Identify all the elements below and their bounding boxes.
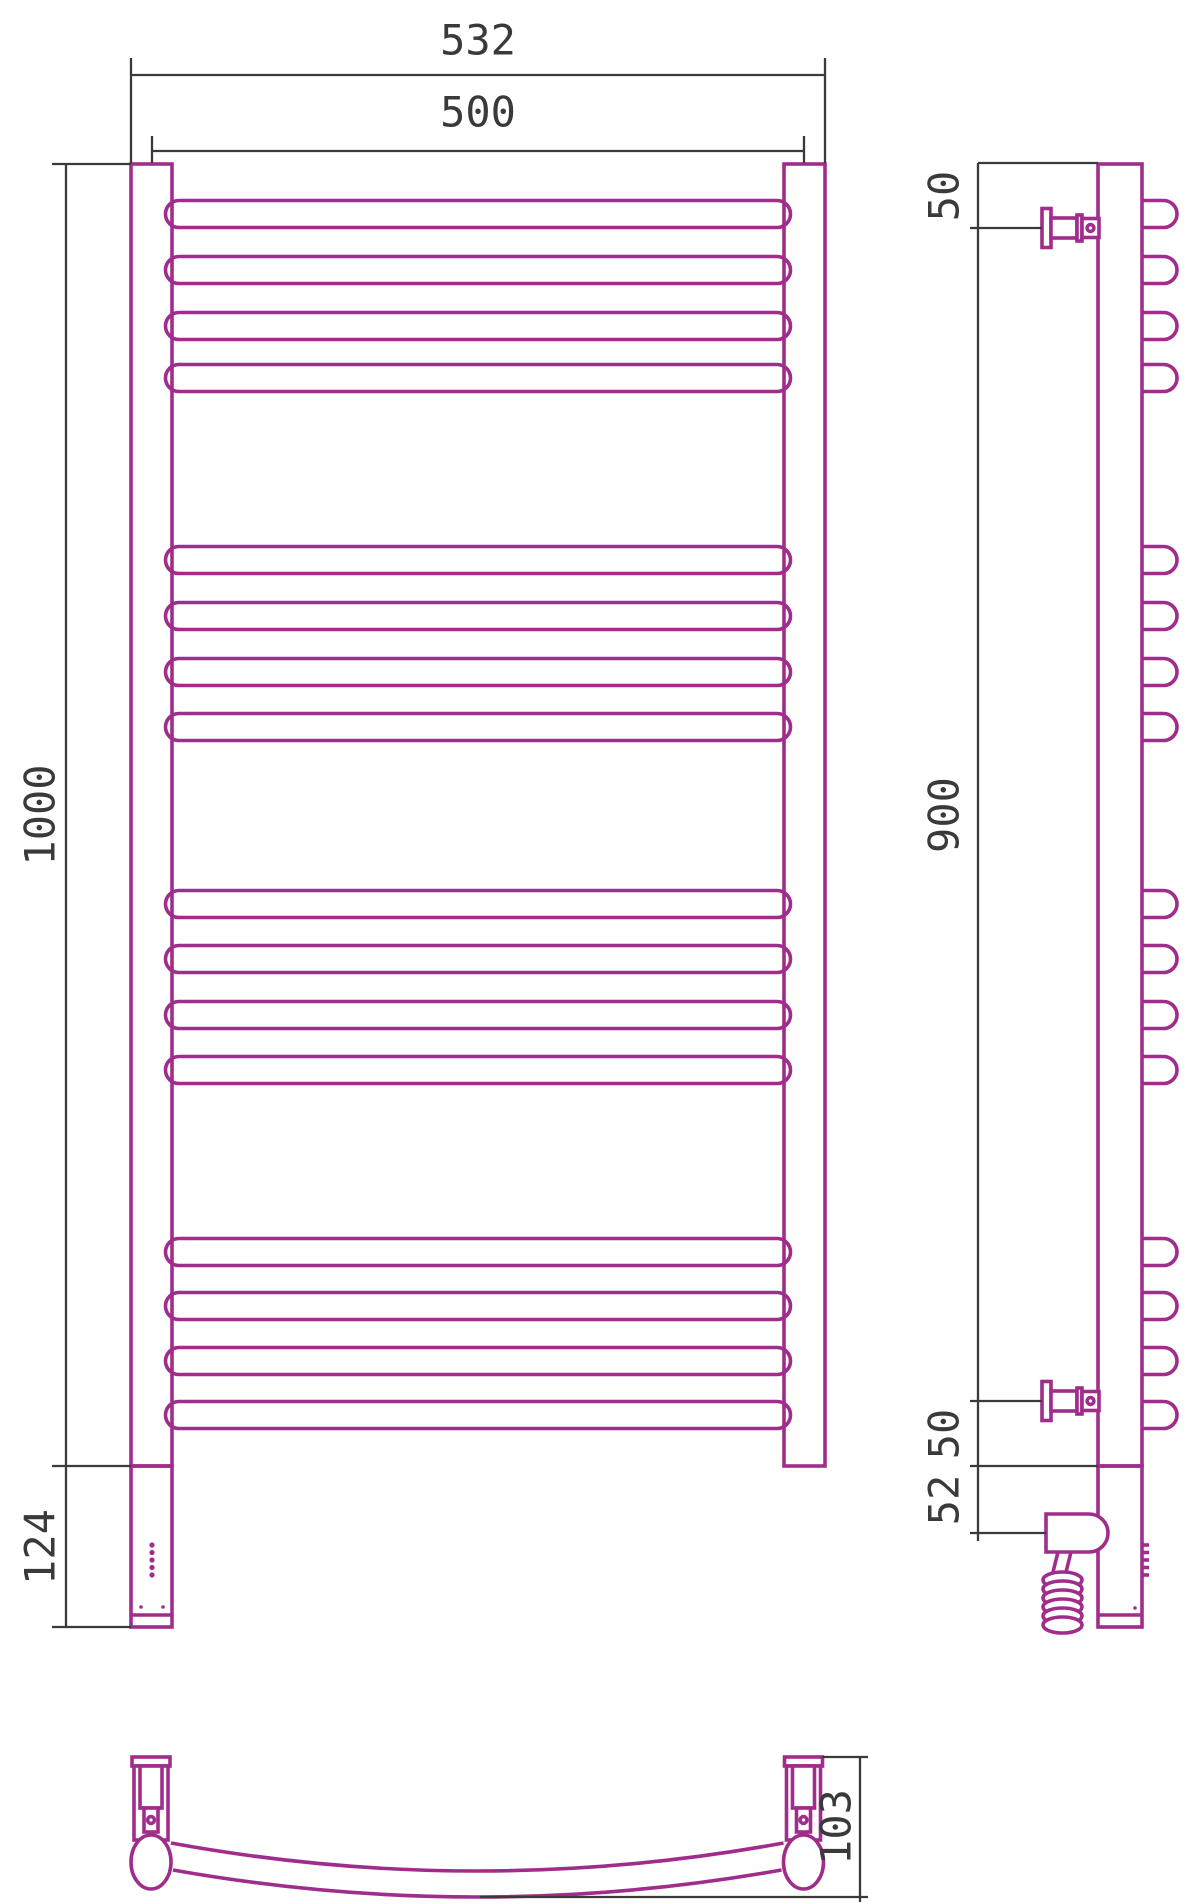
bracket-pin <box>1051 1391 1077 1411</box>
curved-bar-top-edge <box>171 1843 784 1871</box>
led-indicator-dot <box>149 1572 154 1577</box>
rung-stub <box>1142 257 1177 284</box>
led-indicator-dot <box>149 1557 154 1562</box>
technical-drawing-page: 5325001000124509005052103 <box>0 0 1200 1904</box>
rung-bar <box>166 603 791 630</box>
power-outlet-housing <box>1046 1514 1108 1552</box>
led-indicator-dot <box>149 1550 154 1555</box>
rung-bar <box>166 1057 791 1084</box>
rung-stub <box>1142 201 1177 228</box>
cable-coil-loop <box>1043 1617 1082 1633</box>
rung-stub <box>1142 1239 1177 1266</box>
rung-bar <box>166 1002 791 1029</box>
bracket-head <box>1082 1392 1099 1411</box>
dim-label-124: 124 <box>16 1509 65 1585</box>
dim-label-1000: 1000 <box>16 764 65 865</box>
rung-stub <box>1142 1402 1177 1429</box>
dim-label-500: 500 <box>440 88 516 137</box>
towel-rail-drawing: 5325001000124509005052103 <box>0 0 1200 1904</box>
rung-stub <box>1142 1057 1177 1084</box>
rung-bar <box>166 1293 791 1320</box>
dim-label-50-top: 50 <box>920 171 969 222</box>
side-post <box>1098 164 1142 1466</box>
rung-bar <box>166 547 791 574</box>
rung-bar <box>166 659 791 686</box>
dim-label-103: 103 <box>812 1789 861 1865</box>
dim-label-52: 52 <box>920 1475 969 1526</box>
screw-dot <box>161 1605 165 1609</box>
rung-bar <box>166 891 791 918</box>
rung-stub <box>1142 1293 1177 1320</box>
rung-bar <box>166 1348 791 1375</box>
curved-bar-bottom-edge <box>173 1870 782 1897</box>
bottom-view <box>131 1757 824 1897</box>
rung-stub <box>1142 1002 1177 1029</box>
rung-stub <box>1142 891 1177 918</box>
dim-label-50-bottom: 50 <box>920 1409 969 1460</box>
rung-bar <box>166 257 791 284</box>
rung-bar <box>166 313 791 340</box>
rung-stub <box>1142 1348 1177 1375</box>
rung-bar <box>166 714 791 741</box>
rung-stub <box>1142 946 1177 973</box>
rung-stub <box>1142 603 1177 630</box>
screw-dot <box>1133 1606 1137 1610</box>
rung-stub <box>1142 547 1177 574</box>
rung-bar <box>166 365 791 392</box>
rung-stub <box>1142 365 1177 392</box>
rung-stub <box>1142 714 1177 741</box>
rung-bar <box>166 946 791 973</box>
dim-label-532: 532 <box>440 16 516 65</box>
bracket-pin <box>1051 218 1077 238</box>
bracket-pin <box>140 1766 162 1808</box>
rung-stub <box>1142 659 1177 686</box>
rung-bar <box>166 1402 791 1429</box>
rung-bar <box>166 201 791 228</box>
led-indicator-dot <box>149 1542 154 1547</box>
left-post <box>131 164 172 1466</box>
bracket-head <box>1082 219 1099 238</box>
rung-stub <box>1142 313 1177 340</box>
rung-bar <box>166 1239 791 1266</box>
post-end-fitting <box>131 1835 171 1889</box>
front-view <box>131 164 825 1627</box>
dim-label-900: 900 <box>920 777 969 853</box>
dimension-lines <box>52 58 1098 1902</box>
led-indicator-dot <box>149 1565 154 1570</box>
right-post <box>784 164 825 1466</box>
side-view <box>1042 164 1177 1633</box>
screw-dot <box>139 1605 143 1609</box>
